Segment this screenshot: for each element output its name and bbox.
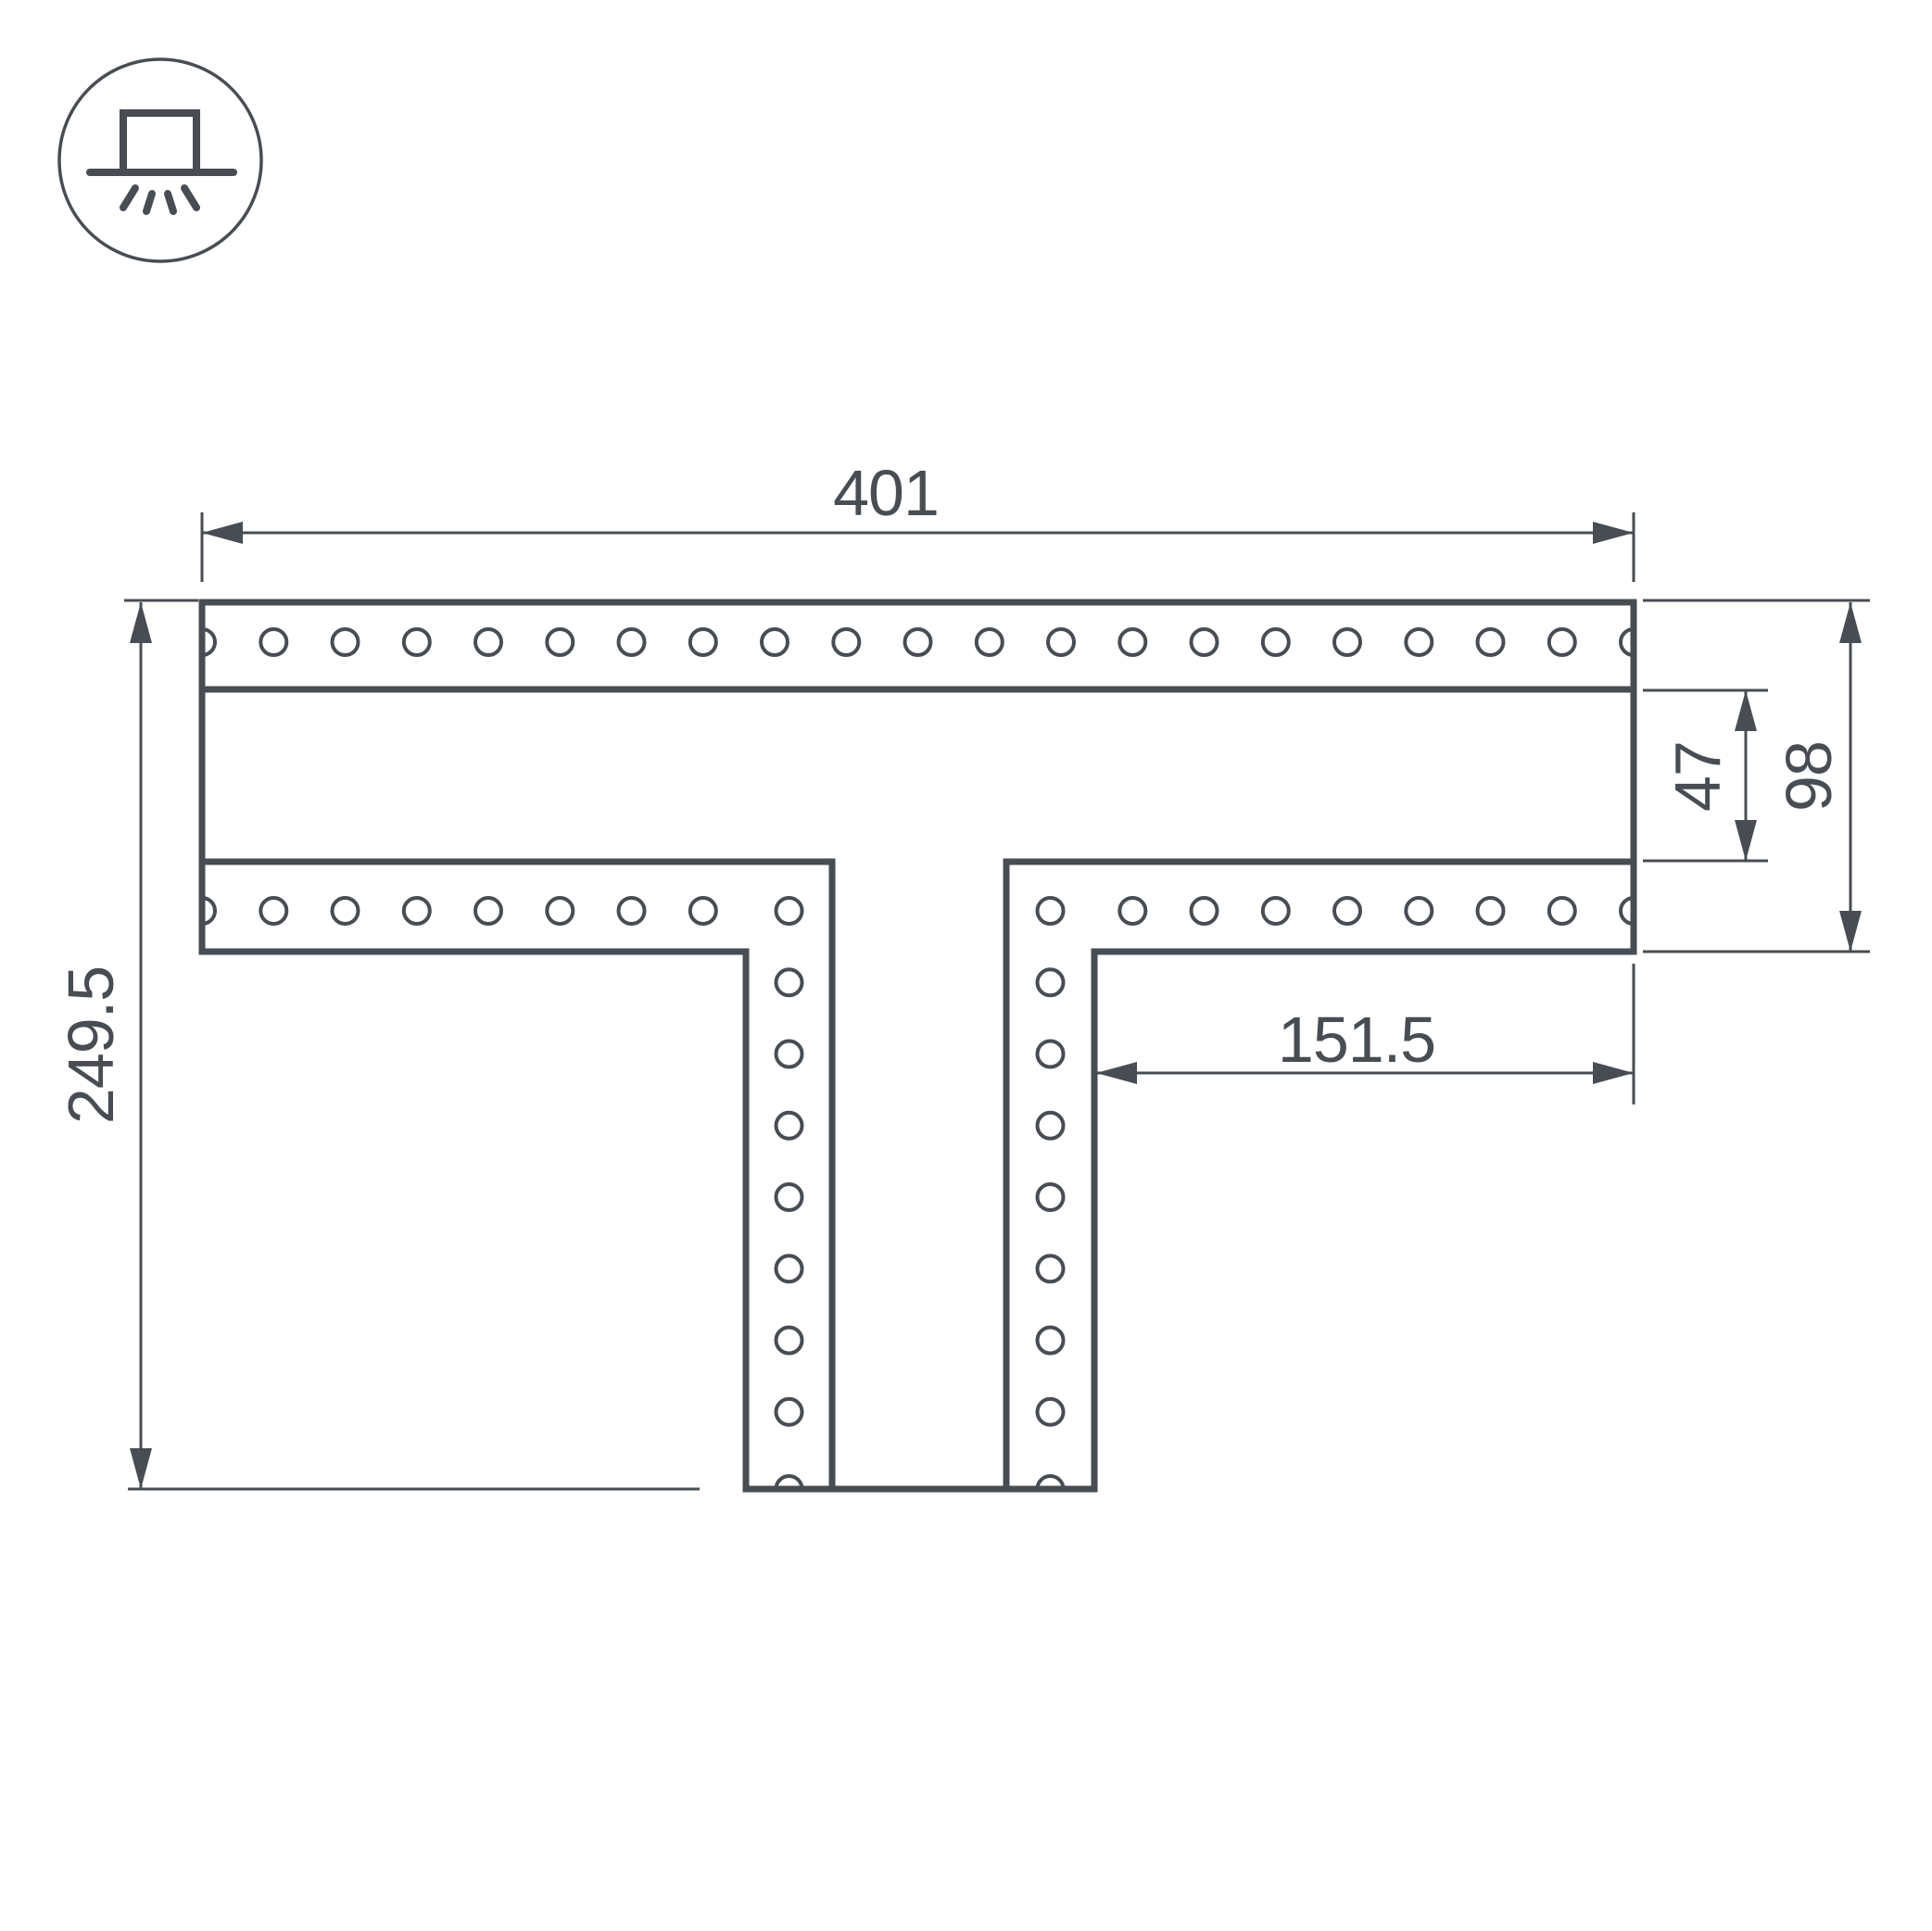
mounting-hole (619, 898, 645, 924)
dim-flange-height-label: 98 (1773, 741, 1845, 812)
mounting-hole (333, 898, 359, 924)
mounting-hole (1038, 1256, 1064, 1281)
mounting-hole (547, 629, 573, 655)
arrowhead-left (1096, 1062, 1137, 1084)
mounting-hole (833, 629, 859, 655)
mounting-hole (1119, 629, 1145, 655)
dimension-total-width: 401 (202, 457, 1634, 582)
icon-lamp-housing (123, 113, 196, 172)
channel-left-edge (202, 862, 832, 1489)
mounting-hole (475, 629, 501, 655)
mounting-hole (1038, 898, 1064, 924)
arrowhead-up (1839, 602, 1862, 643)
mounting-hole (777, 1256, 802, 1281)
dim-branch-length-label: 151.5 (1278, 1003, 1435, 1076)
mounting-hole (619, 629, 645, 655)
t-connector-dimension-drawing: 401 249.5 47 98 (0, 0, 1932, 1931)
dim-channel-width-label: 47 (1661, 741, 1734, 812)
arrowhead-up (130, 602, 152, 643)
dimension-branch-length: 151.5 (1096, 964, 1634, 1104)
mounting-hole (777, 1328, 802, 1354)
mounting-hole (547, 898, 573, 924)
mounting-hole (1038, 1184, 1064, 1210)
arrowhead-right (1593, 522, 1634, 544)
dim-total-height-label: 249.5 (55, 966, 127, 1124)
mounting-hole (777, 1184, 802, 1210)
mounting-hole (1549, 898, 1575, 924)
icon-light-rays (123, 188, 196, 211)
mounting-hole (1549, 629, 1575, 655)
mounting-hole (1334, 898, 1360, 924)
mounting-hole (1192, 898, 1218, 924)
mounting-hole (1478, 629, 1504, 655)
mounting-hole (404, 629, 430, 655)
mounting-hole (777, 969, 802, 995)
mounting-hole (1263, 898, 1289, 924)
recessed-light-icon (59, 59, 261, 261)
arrowhead-down (1735, 820, 1757, 861)
mounting-hole (762, 629, 788, 655)
mounting-hole (404, 898, 430, 924)
channel-right-edge (1006, 862, 1634, 1489)
mounting-hole (1119, 898, 1145, 924)
mounting-hole (1038, 1113, 1064, 1139)
mounting-hole (777, 898, 802, 924)
mounting-hole (1192, 629, 1218, 655)
mounting-hole (1038, 1328, 1064, 1354)
mounting-hole (1406, 629, 1432, 655)
mounting-hole (977, 629, 1003, 655)
mounting-hole (260, 898, 286, 924)
arrowhead-right (1593, 1062, 1634, 1084)
mounting-hole (475, 898, 501, 924)
mounting-hole (260, 629, 286, 655)
arrowhead-left (202, 522, 243, 544)
dimension-channel-width: 47 (1643, 690, 1768, 861)
mounting-hole (690, 629, 716, 655)
mounting-hole (690, 898, 716, 924)
arrowhead-down (1839, 911, 1862, 952)
mounting-hole (1406, 898, 1432, 924)
mounting-hole (1334, 629, 1360, 655)
dimension-total-height: 249.5 (55, 600, 700, 1489)
mounting-hole (1478, 898, 1504, 924)
technical-drawing-page: 401 249.5 47 98 (0, 0, 1932, 1931)
mounting-hole (1038, 1399, 1064, 1425)
mounting-hole (1038, 969, 1064, 995)
mounting-hole (1263, 629, 1289, 655)
mounting-hole (777, 1041, 802, 1067)
mounting-hole (1048, 629, 1074, 655)
mounting-hole (905, 629, 931, 655)
arrowhead-up (1735, 690, 1757, 731)
mounting-hole (777, 1113, 802, 1139)
icon-circle-border (59, 59, 261, 261)
mounting-hole (777, 1399, 802, 1425)
dim-total-width-label: 401 (833, 457, 939, 529)
mounting-hole (1038, 1041, 1064, 1067)
mounting-hole (333, 629, 359, 655)
arrowhead-down (130, 1448, 152, 1489)
